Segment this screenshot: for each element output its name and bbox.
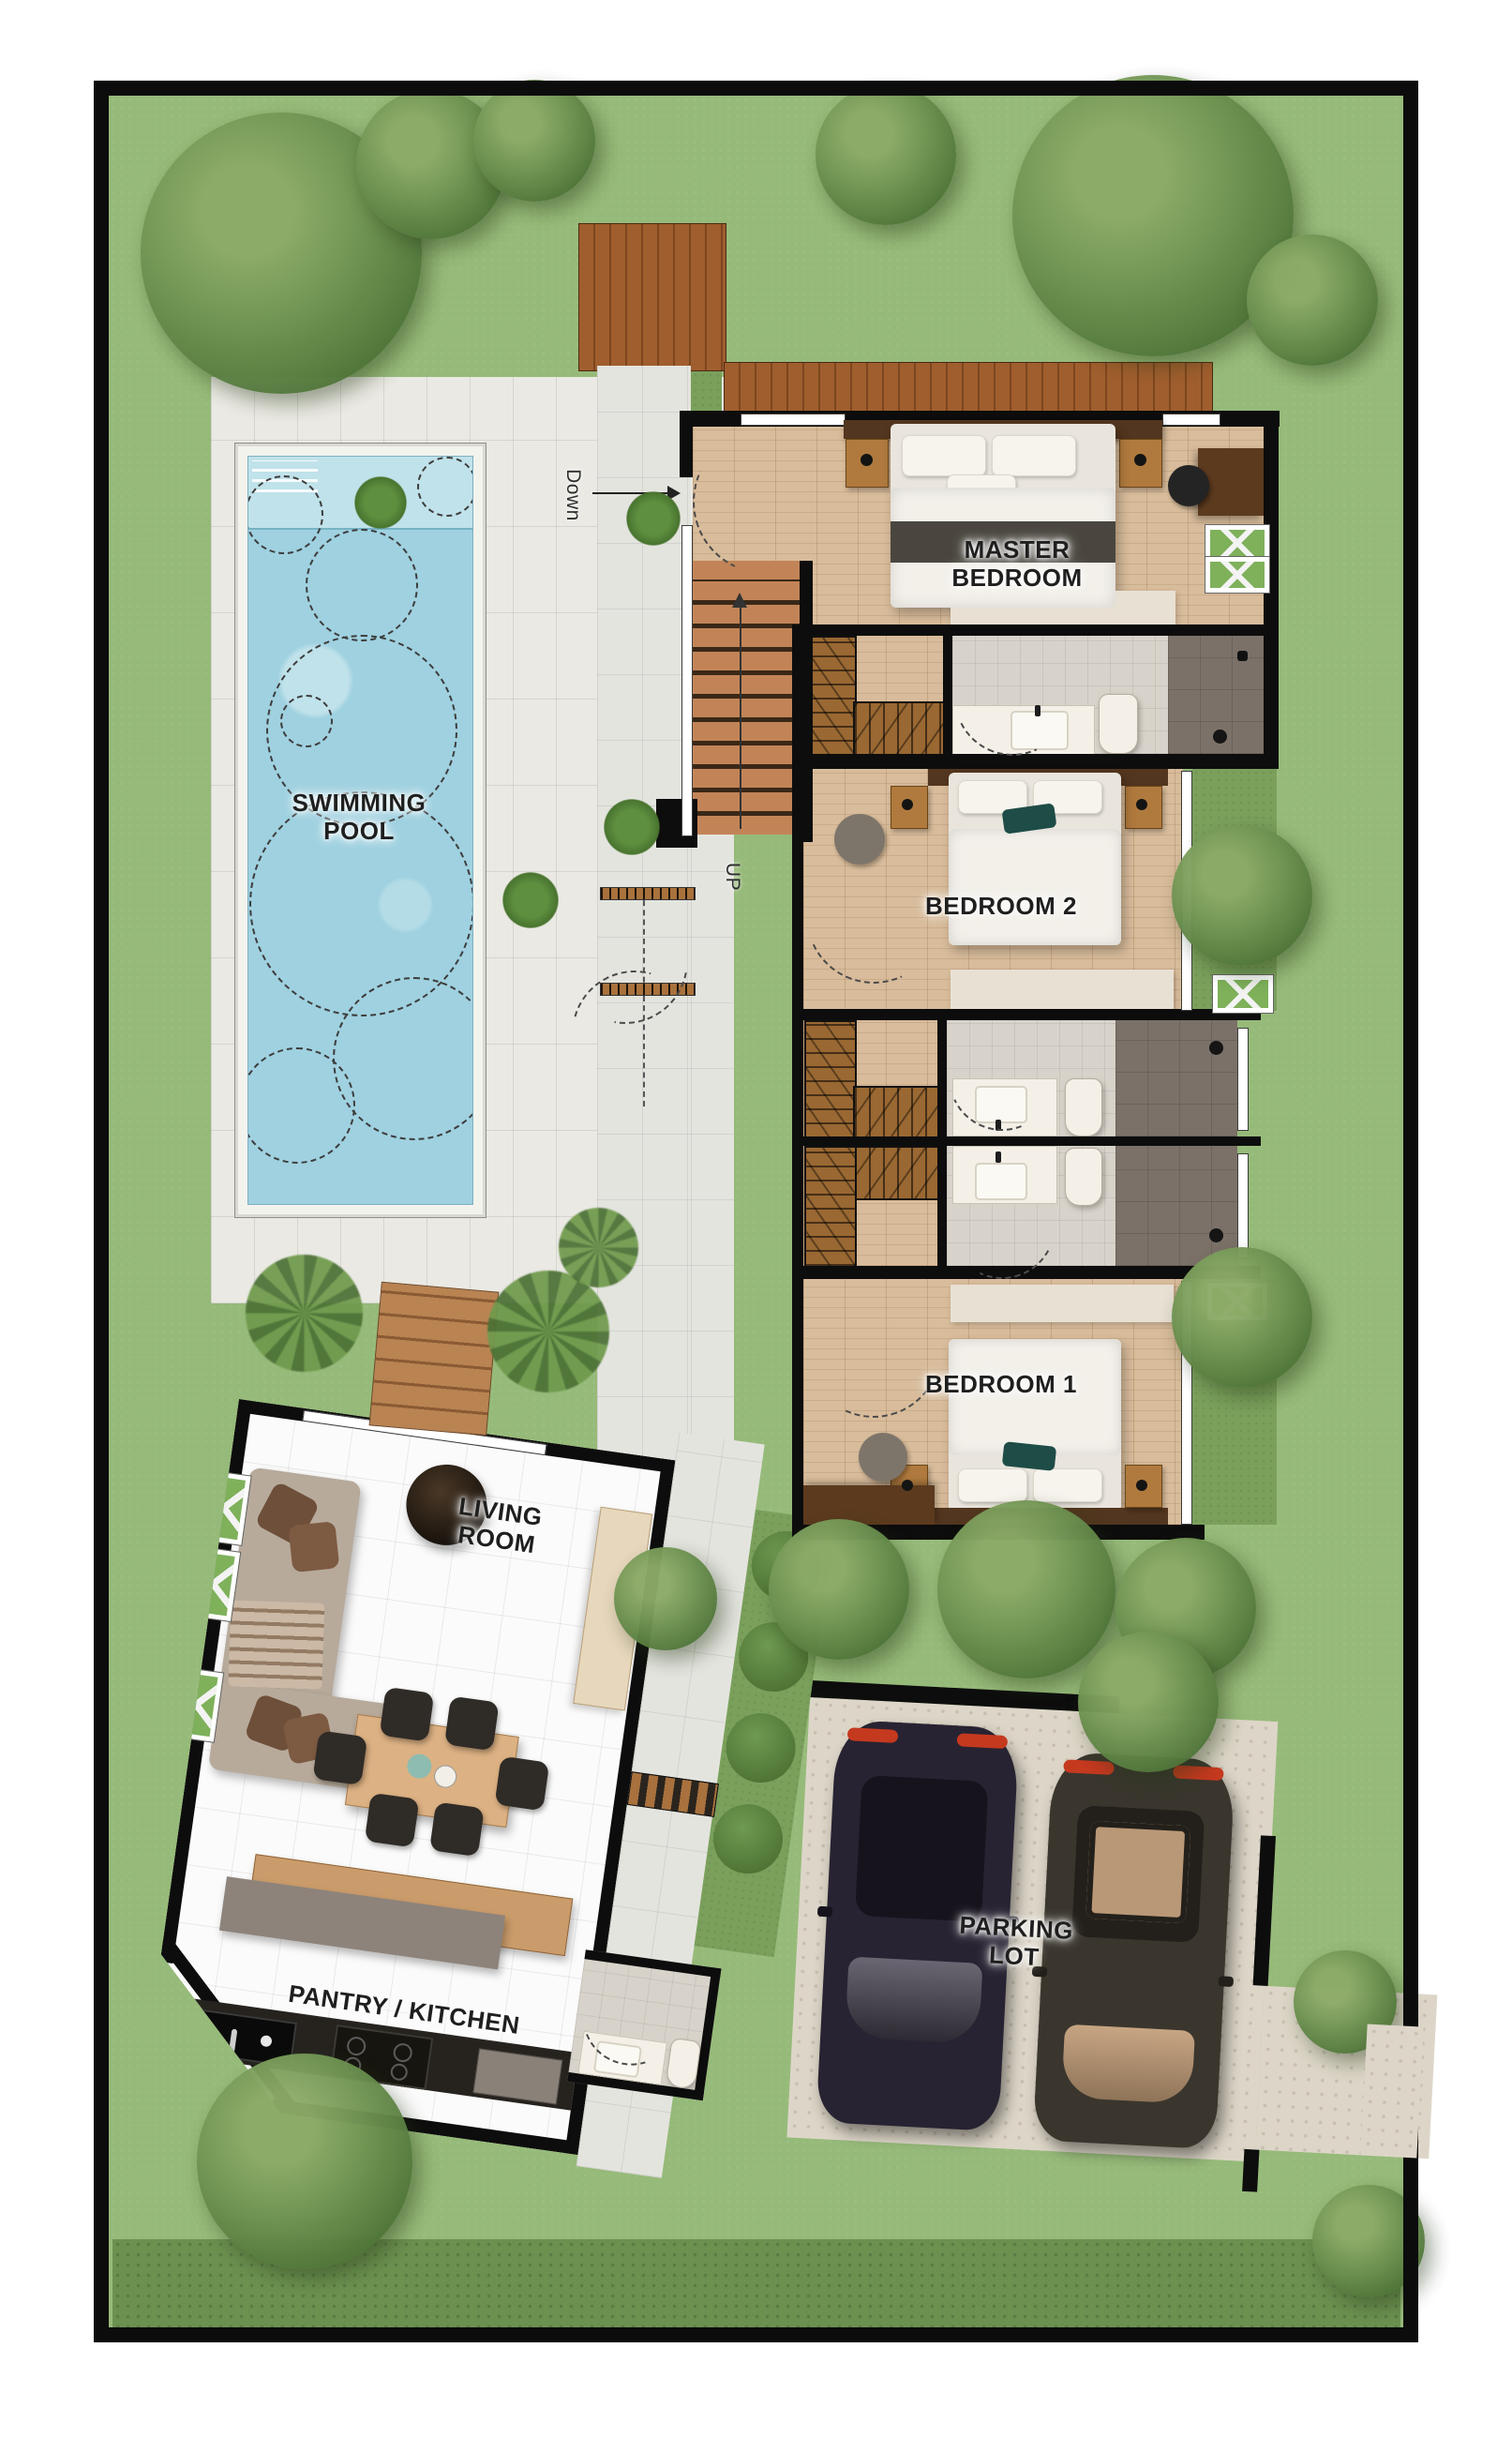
swimming-pool-label: SWIMMING POOL [284,790,434,846]
bedroom-2-label: BEDROOM 2 [907,893,1095,921]
floor-plan-canvas: SWIMMING POOL Down UP [0,0,1512,2438]
master-bedroom-label: MASTER BEDROOM [923,536,1111,593]
site-boundary [94,81,1418,2342]
driveway-gate-opening [1360,2024,1423,2159]
stairs-up-label: UP [723,849,743,905]
bedroom-1-label: BEDROOM 1 [907,1371,1095,1399]
stairs-down-label: Down [563,458,584,533]
